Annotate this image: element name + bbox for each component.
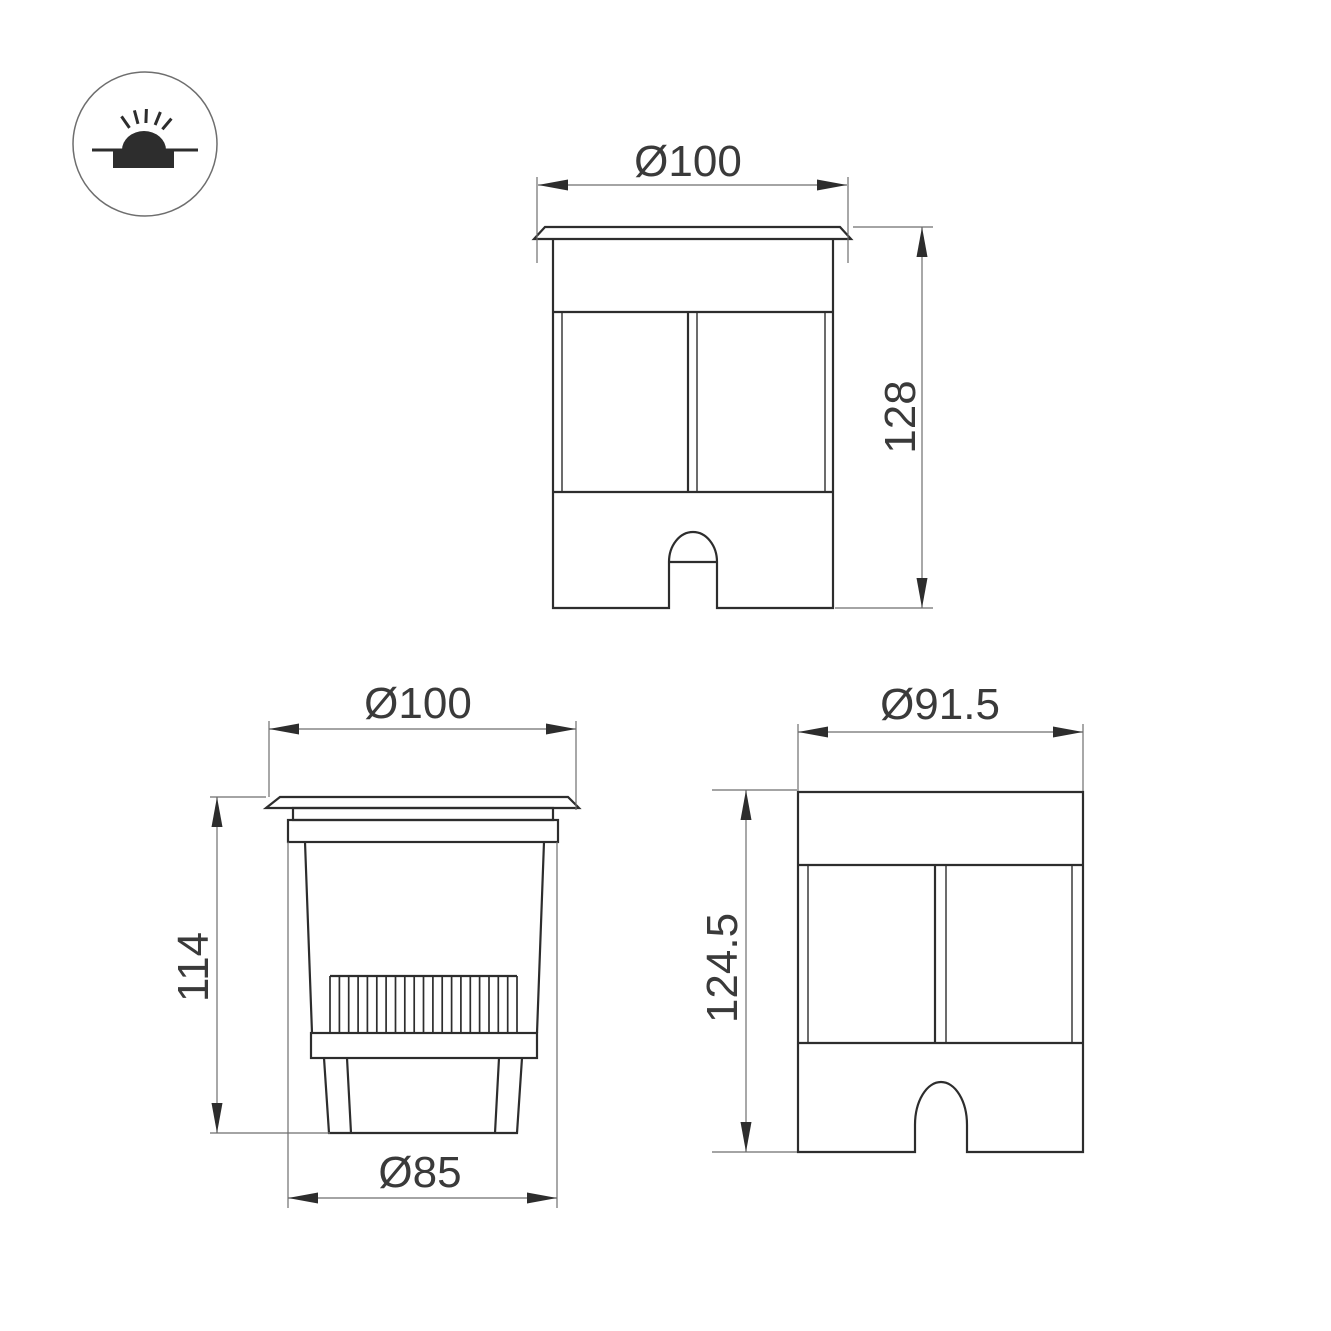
dim-label: 114 bbox=[169, 932, 218, 1002]
dim-side-width: Ø91.5 bbox=[798, 680, 1083, 791]
side-glass-margins bbox=[808, 865, 1072, 1043]
arrow-down bbox=[741, 1122, 752, 1152]
view-side: Ø91.5 124.5 bbox=[698, 680, 1083, 1152]
dim-front-width: Ø100 bbox=[537, 137, 848, 263]
arrow-right bbox=[546, 724, 576, 735]
arrow-down bbox=[212, 1103, 223, 1133]
dim-section-width: Ø100 bbox=[269, 679, 576, 810]
lamp-dome bbox=[122, 131, 166, 150]
arrow-left bbox=[798, 727, 828, 738]
extension-lines bbox=[798, 724, 1083, 791]
dim-label: 128 bbox=[876, 380, 925, 453]
arrow-right bbox=[527, 1193, 557, 1204]
arrow-up bbox=[917, 227, 928, 257]
front-flange bbox=[534, 227, 851, 239]
extension-lines bbox=[210, 797, 330, 1133]
view-front: Ø100 128 bbox=[534, 137, 933, 608]
arrow-left bbox=[269, 724, 299, 735]
section-collar bbox=[288, 820, 558, 842]
side-section-lines bbox=[798, 865, 1083, 1043]
technical-drawing-sheet: Ø100 128 Ø100 1 bbox=[0, 0, 1331, 1331]
dim-label: Ø91.5 bbox=[880, 680, 1000, 729]
dim-label: Ø100 bbox=[364, 679, 472, 728]
arrow-right bbox=[817, 180, 847, 191]
front-section-lines bbox=[553, 312, 833, 492]
arrow-left bbox=[538, 180, 568, 191]
side-body-outline bbox=[798, 792, 1083, 1152]
arrow-down bbox=[917, 578, 928, 608]
arrow-up bbox=[212, 797, 223, 827]
section-rear-housing bbox=[324, 1058, 522, 1133]
dim-front-height: 128 bbox=[835, 227, 933, 608]
arrow-up bbox=[741, 790, 752, 820]
arrow-left bbox=[288, 1193, 318, 1204]
drawing-svg: Ø100 128 Ø100 1 bbox=[0, 0, 1331, 1331]
heatsink-fins bbox=[330, 976, 517, 1033]
front-glass-margins bbox=[562, 312, 825, 492]
recessed-ground-light-icon bbox=[73, 72, 217, 216]
section-ring bbox=[293, 808, 553, 820]
lamp-body bbox=[113, 150, 174, 168]
front-body-outline bbox=[553, 239, 833, 608]
dim-label: Ø85 bbox=[378, 1148, 461, 1197]
dim-label: Ø100 bbox=[634, 137, 742, 186]
arrow-right bbox=[1053, 727, 1083, 738]
dim-side-height: 124.5 bbox=[698, 790, 797, 1152]
extension-lines bbox=[537, 177, 848, 263]
light-rays bbox=[122, 109, 172, 129]
section-plate bbox=[311, 1033, 537, 1058]
dim-label: 124.5 bbox=[698, 913, 747, 1023]
view-section: Ø100 114 Ø85 bbox=[169, 679, 579, 1208]
section-flange bbox=[266, 797, 579, 808]
